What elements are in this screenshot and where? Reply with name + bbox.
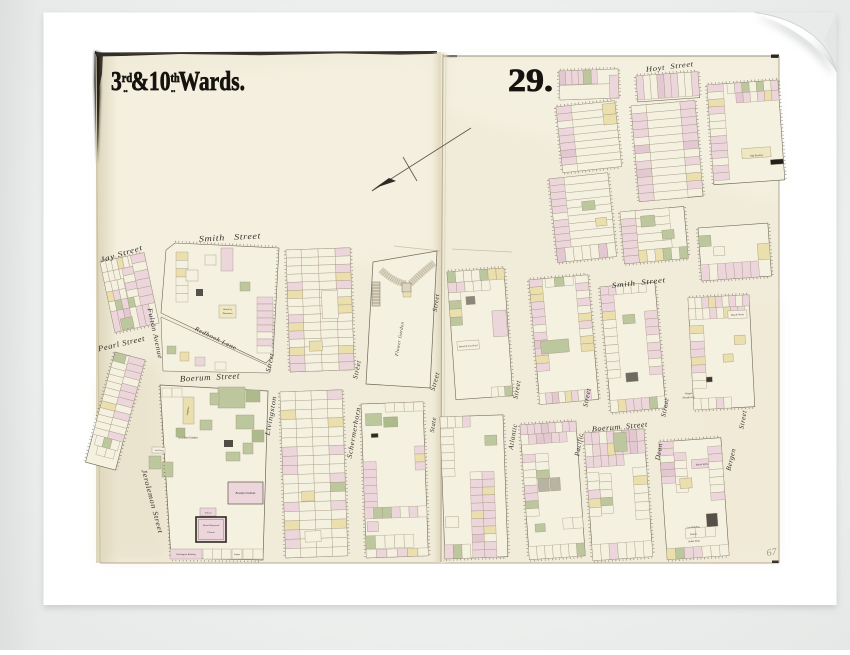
svg-text:Washington Building: Washington Building: [176, 553, 196, 556]
svg-text:Brooklyn Institute: Brooklyn Institute: [235, 492, 256, 495]
svg-text:School: School: [205, 512, 212, 515]
svg-text:Posters: Posters: [689, 533, 697, 537]
svg-text:Ash Pens: Ash Pens: [153, 449, 162, 452]
svg-text:29.: 29.: [508, 63, 553, 99]
svg-text:Engine: Engine: [233, 554, 240, 556]
svg-text:Board of: Board of: [223, 308, 232, 311]
svg-text:Church: Church: [207, 531, 215, 534]
svg-text:Vinegar: Vinegar: [685, 392, 693, 395]
svg-text:Dutch Reformed: Dutch Reformed: [202, 524, 220, 527]
svg-text:3rd..&10th..Wards.: 3rd..&10th..Wards.: [111, 66, 245, 96]
svg-text:Education: Education: [222, 312, 234, 315]
